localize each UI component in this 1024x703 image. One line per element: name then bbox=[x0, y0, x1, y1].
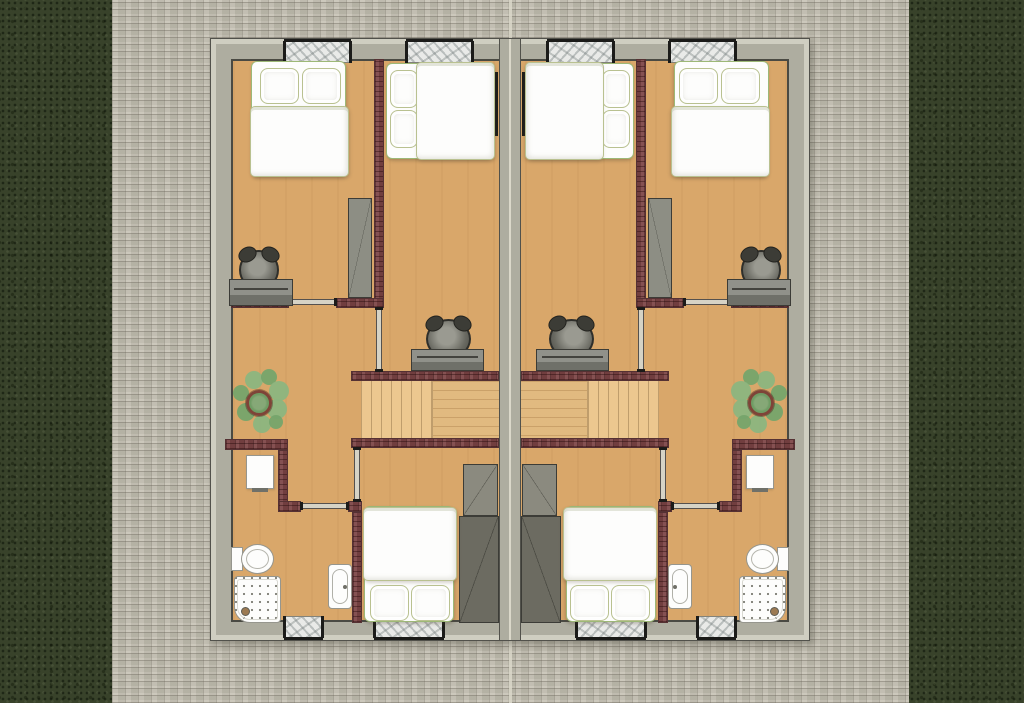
window-bathroom bbox=[697, 616, 736, 640]
washbasin-cabinet bbox=[246, 455, 274, 489]
pillow bbox=[390, 110, 418, 148]
pillow bbox=[721, 68, 760, 104]
plant-leaf bbox=[269, 381, 289, 401]
building bbox=[210, 38, 810, 641]
pillow bbox=[260, 68, 299, 104]
sink bbox=[328, 564, 352, 609]
bed-middle-bedroom bbox=[386, 63, 492, 159]
window-front-bedroom bbox=[669, 39, 736, 63]
plant-leaf bbox=[269, 415, 283, 429]
pillow bbox=[411, 585, 450, 621]
sink bbox=[668, 564, 692, 609]
rear-bedroom-wall bbox=[658, 512, 668, 623]
pillow bbox=[602, 110, 630, 148]
wardrobe-front-bedroom bbox=[648, 198, 672, 298]
partition-wall-bedrooms bbox=[374, 59, 384, 308]
door-bathroom bbox=[301, 503, 348, 509]
wardrobe-rear-bottom bbox=[521, 516, 561, 623]
plant-leaf bbox=[757, 371, 775, 389]
party-wall bbox=[510, 39, 521, 640]
stair-wall-top bbox=[351, 371, 499, 381]
pillow bbox=[370, 585, 409, 621]
toilet-bowl bbox=[746, 544, 779, 574]
pillow bbox=[602, 70, 630, 108]
pillow bbox=[302, 68, 341, 104]
window-bathroom bbox=[284, 616, 323, 640]
door-front-bedroom bbox=[684, 299, 731, 305]
desk-front-bedroom bbox=[229, 279, 293, 306]
washbasin-cabinet bbox=[746, 455, 774, 489]
duvet bbox=[250, 106, 349, 177]
window-middle-bedroom bbox=[547, 39, 614, 63]
staircase bbox=[361, 381, 499, 438]
bathroom-wall-jog-a bbox=[719, 501, 742, 512]
party-wall bbox=[499, 39, 510, 640]
rear-bedroom-wall bbox=[352, 512, 362, 623]
bed-rear-bedroom bbox=[566, 506, 656, 622]
wardrobe-rear-bottom bbox=[459, 516, 499, 623]
door-bathroom bbox=[672, 503, 719, 509]
potted-plant bbox=[233, 371, 285, 433]
duvet bbox=[525, 62, 604, 160]
pillow bbox=[611, 585, 650, 621]
bathroom-wall-jog-b bbox=[348, 501, 362, 512]
plant-pot bbox=[246, 390, 272, 416]
door-front-bedroom bbox=[289, 299, 336, 305]
desk-front-bedroom bbox=[727, 279, 791, 306]
bathroom-wall-top bbox=[732, 439, 795, 450]
window-front-bedroom bbox=[284, 39, 351, 63]
bathroom-wall-jog-a bbox=[278, 501, 301, 512]
pillow bbox=[390, 70, 418, 108]
shower-tray bbox=[234, 576, 281, 623]
potted-plant bbox=[735, 371, 787, 433]
bed-front-bedroom bbox=[251, 61, 346, 176]
bathroom-wall-top bbox=[225, 439, 288, 450]
window-middle-bedroom bbox=[406, 39, 473, 63]
wardrobe-rear-top bbox=[522, 464, 557, 516]
bathroom-wall-jog-b bbox=[658, 501, 672, 512]
stair-wall-bottom bbox=[521, 438, 669, 448]
pillow bbox=[570, 585, 609, 621]
door-middle-bedroom bbox=[638, 308, 644, 371]
toilet-bowl bbox=[241, 544, 274, 574]
stair-wall-bottom bbox=[351, 438, 499, 448]
bathroom-wall-corner bbox=[732, 450, 742, 506]
plant-leaf bbox=[749, 415, 767, 433]
bathroom-wall-corner bbox=[278, 450, 288, 506]
plant-pot bbox=[748, 390, 774, 416]
toilet bbox=[746, 544, 789, 574]
duvet bbox=[563, 507, 657, 581]
duvet bbox=[671, 106, 770, 177]
plant-leaf bbox=[245, 371, 263, 389]
wardrobe-rear-top bbox=[463, 464, 498, 516]
duvet bbox=[363, 507, 457, 581]
duvet bbox=[416, 62, 495, 160]
pillow bbox=[679, 68, 718, 104]
door-rear-bedroom bbox=[660, 448, 666, 501]
grass-strip-right bbox=[909, 0, 1024, 703]
plant-leaf bbox=[737, 415, 751, 429]
wardrobe-front-bedroom bbox=[348, 198, 372, 298]
grass-strip-left bbox=[0, 0, 112, 703]
bed-middle-bedroom bbox=[528, 63, 634, 159]
floor-plan-scene bbox=[0, 0, 1024, 703]
door-rear-bedroom bbox=[354, 448, 360, 501]
unit-right bbox=[510, 39, 809, 640]
partition-wall-bedrooms bbox=[636, 59, 646, 308]
unit-left bbox=[211, 39, 510, 640]
desk-landing bbox=[536, 349, 609, 371]
door-middle-bedroom bbox=[376, 308, 382, 371]
shower-tray bbox=[739, 576, 786, 623]
bed-front-bedroom bbox=[674, 61, 769, 176]
stair-wall-top bbox=[521, 371, 669, 381]
staircase bbox=[521, 381, 659, 438]
desk-landing bbox=[411, 349, 484, 371]
toilet bbox=[231, 544, 274, 574]
bed-rear-bedroom bbox=[364, 506, 454, 622]
